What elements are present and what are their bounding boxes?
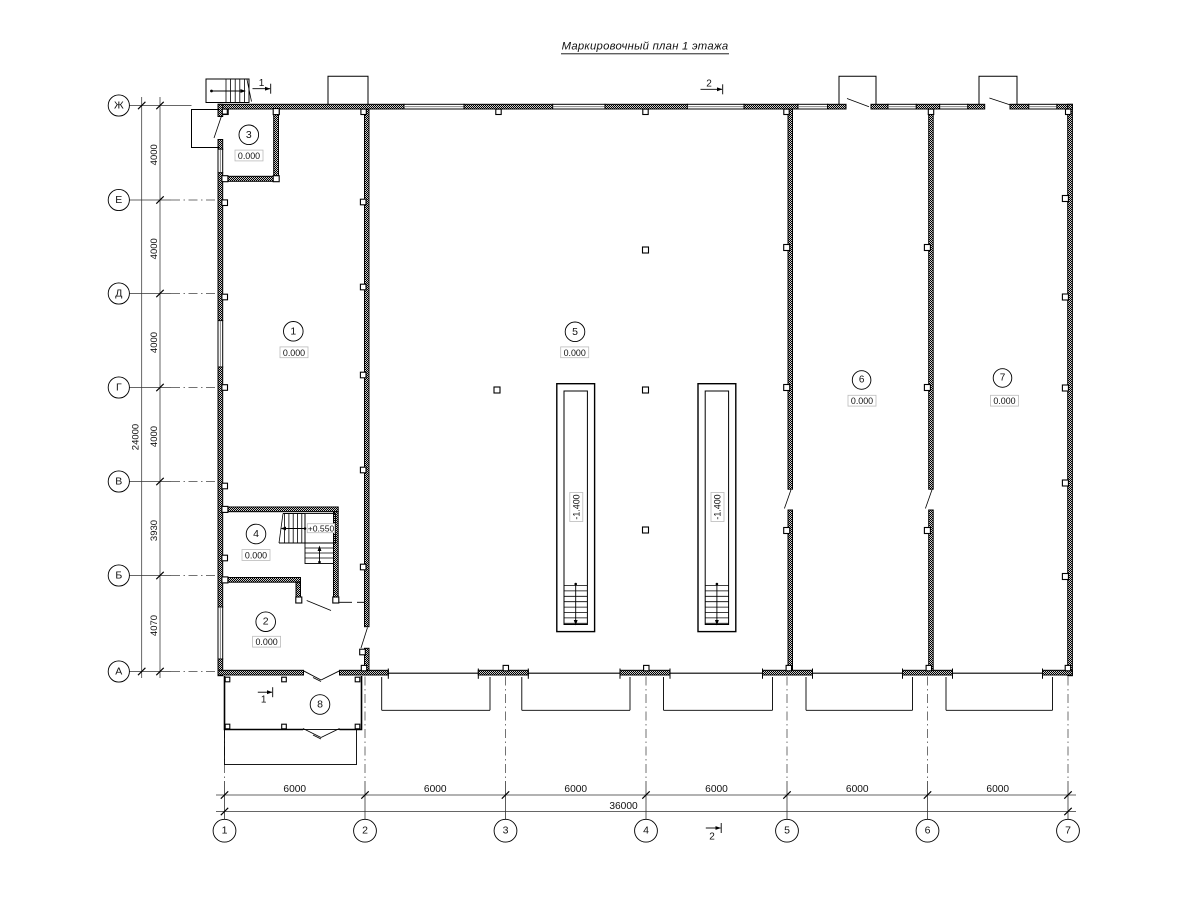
svg-text:В: В [115, 476, 122, 488]
svg-text:3930: 3930 [149, 520, 160, 541]
svg-text:0.000: 0.000 [993, 396, 1015, 406]
svg-text:7: 7 [1065, 825, 1071, 837]
svg-text:8: 8 [317, 699, 323, 711]
svg-text:1: 1 [290, 325, 296, 337]
svg-text:Г: Г [116, 382, 122, 394]
svg-text:-1.400: -1.400 [571, 494, 581, 519]
svg-text:4: 4 [253, 528, 259, 540]
svg-text:-1.400: -1.400 [713, 494, 723, 519]
svg-text:0.000: 0.000 [255, 637, 277, 647]
svg-text:6: 6 [925, 825, 931, 837]
svg-text:6000: 6000 [424, 784, 447, 795]
svg-text:4070: 4070 [149, 615, 160, 636]
svg-text:4000: 4000 [149, 426, 160, 447]
svg-text:1: 1 [259, 78, 265, 89]
svg-text:36000: 36000 [609, 801, 638, 812]
svg-text:7: 7 [1000, 373, 1006, 384]
svg-text:3: 3 [246, 129, 252, 141]
svg-text:+0.550: +0.550 [308, 524, 335, 534]
svg-text:Д: Д [115, 288, 122, 300]
svg-text:0.000: 0.000 [851, 396, 873, 406]
svg-text:6000: 6000 [705, 784, 728, 795]
svg-text:0.000: 0.000 [564, 348, 586, 358]
svg-text:5: 5 [784, 825, 790, 837]
svg-text:А: А [115, 666, 122, 678]
svg-text:4000: 4000 [149, 332, 160, 353]
svg-text:3: 3 [503, 825, 509, 837]
svg-text:6000: 6000 [986, 784, 1009, 795]
svg-text:6000: 6000 [283, 784, 306, 795]
svg-text:Ж: Ж [114, 100, 124, 112]
svg-text:2: 2 [263, 616, 269, 628]
svg-text:4000: 4000 [149, 144, 160, 165]
svg-text:6000: 6000 [846, 784, 869, 795]
svg-text:24000: 24000 [131, 424, 142, 450]
svg-text:1: 1 [222, 825, 228, 837]
svg-text:Маркировочный план 1 этажа: Маркировочный план 1 этажа [562, 41, 729, 53]
svg-text:2: 2 [706, 78, 712, 89]
svg-text:6000: 6000 [564, 784, 587, 795]
svg-text:0.000: 0.000 [238, 151, 260, 161]
svg-text:6: 6 [859, 375, 865, 386]
svg-text:2: 2 [362, 825, 368, 837]
svg-text:0.000: 0.000 [283, 348, 305, 358]
svg-text:4: 4 [643, 825, 649, 837]
svg-text:5: 5 [572, 326, 578, 338]
svg-text:0.000: 0.000 [245, 551, 267, 561]
svg-text:2: 2 [709, 832, 715, 843]
svg-text:Е: Е [115, 194, 122, 206]
svg-text:Б: Б [115, 570, 122, 582]
svg-text:4000: 4000 [149, 238, 160, 259]
svg-text:1: 1 [261, 695, 267, 706]
